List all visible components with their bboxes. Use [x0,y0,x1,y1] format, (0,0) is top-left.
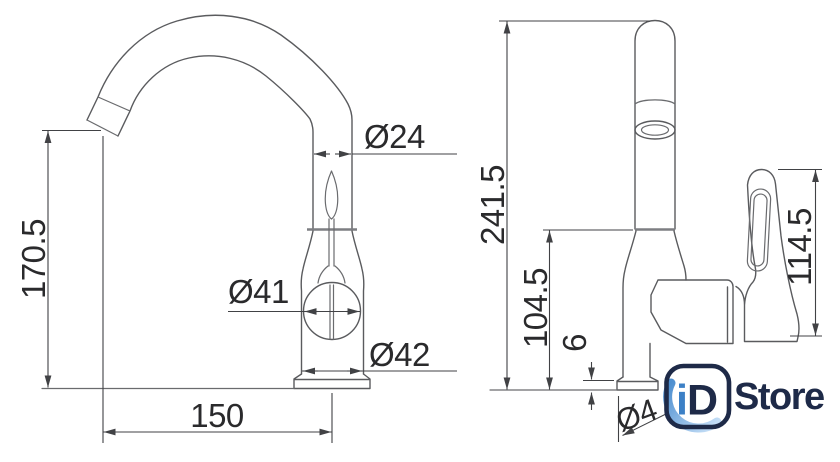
base-plate-height-label: 6 [556,334,593,352]
side-collar-arc [635,100,675,104]
front-body-waist [301,231,364,374]
side-body-waist [623,231,686,377]
handle-height-label: 114.5 [781,208,818,286]
front-lever-blade [318,171,345,339]
spout-outer-outline [87,15,352,229]
front-view-dimensions: 170.5 150 Ø24 Ø41 Ø42 [15,118,457,443]
id-store-logo: i D Store [667,366,825,428]
spout-reach-label: 150 [190,397,244,434]
spout-height-label: 170.5 [15,219,52,299]
spout-diameter-label: Ø24 [364,118,425,155]
side-outlet-ring-inner [642,125,669,135]
logo-wordmark: Store [734,376,824,418]
spout-inner-outline [118,56,313,229]
logo-letter-d: D [687,377,718,425]
front-base-flange [294,374,370,389]
technical-drawing-page: 170.5 150 Ø24 Ø41 Ø42 241.5 [0,0,840,462]
body-diameter-label: Ø41 [228,273,289,310]
body-height-label: 104.5 [517,268,554,348]
total-height-label: 241.5 [474,165,511,245]
side-valve-block [651,280,733,344]
base-diameter-label: Ø42 [369,336,430,373]
technical-drawing-canvas: 170.5 150 Ø24 Ø41 Ø42 241.5 [0,0,840,462]
front-view [42,15,370,388]
